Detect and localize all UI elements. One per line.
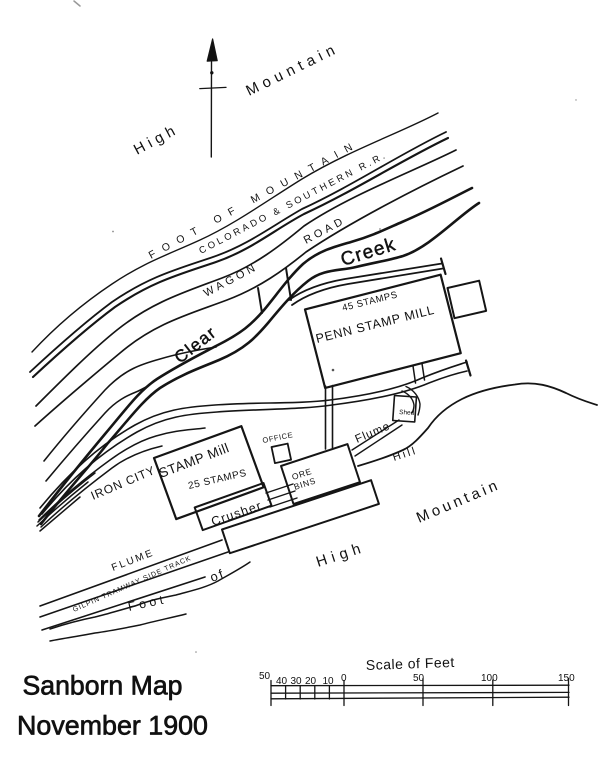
svg-text:20: 20 xyxy=(305,676,317,687)
svg-text:50: 50 xyxy=(259,671,271,682)
svg-text:Scale of Feet: Scale of Feet xyxy=(366,654,456,673)
svg-text:40: 40 xyxy=(276,676,288,687)
svg-text:0: 0 xyxy=(341,673,347,684)
svg-text:150: 150 xyxy=(558,673,575,684)
svg-text:10: 10 xyxy=(323,676,335,687)
svg-text:50: 50 xyxy=(413,673,425,684)
svg-text:November 1900: November 1900 xyxy=(17,711,208,741)
svg-text:Sanborn Map: Sanborn Map xyxy=(23,671,183,701)
svg-text:100: 100 xyxy=(481,673,498,684)
svg-text:Shed: Shed xyxy=(399,409,415,417)
svg-text:30: 30 xyxy=(291,676,303,687)
